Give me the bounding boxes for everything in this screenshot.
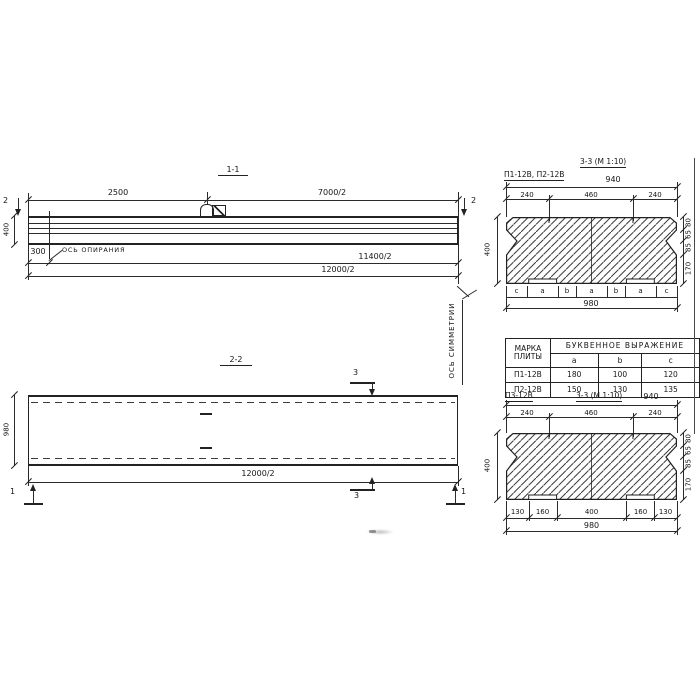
- section-cut-marker-3-top: 3: [353, 368, 358, 377]
- dim-line: [497, 433, 498, 500]
- cut-arrow-line: [372, 382, 373, 389]
- dim-tick: [680, 496, 687, 503]
- extension-line: [207, 192, 208, 204]
- cut-arrow-line: [464, 198, 465, 209]
- plate-cross-section-top: [506, 217, 677, 284]
- dim-label-160: 160: [529, 508, 556, 516]
- letter-c: c: [656, 287, 677, 295]
- section-cut-marker-1-right: 1: [461, 487, 466, 496]
- dim-label-460: 460: [572, 409, 610, 417]
- cut-arrow-line: [33, 490, 34, 503]
- table-col-a: a: [550, 354, 598, 368]
- table-row: П1-12В 180 100 120: [506, 368, 700, 383]
- extension-line: [677, 400, 678, 433]
- section-3-3-title-top: 3-3 (М 1:10): [580, 157, 626, 168]
- center-mark: [200, 413, 212, 415]
- cell-mark: П1-12В: [506, 368, 551, 383]
- dim-label-240: 240: [636, 409, 674, 417]
- dim-line: [497, 217, 498, 284]
- beam-layer-line: [29, 223, 457, 224]
- dim-tick: [494, 496, 501, 503]
- hidden-edge-dashed-line: [31, 402, 455, 403]
- section-cut-marker-1-left: 1: [10, 487, 15, 496]
- dim-label-12000-2: 12000/2: [314, 265, 362, 274]
- dim-tick: [680, 280, 687, 287]
- extension-line: [28, 193, 29, 216]
- extension-line: [677, 182, 678, 217]
- dim-label-12000-2: 12000/2: [234, 469, 282, 478]
- dim-label-940: 940: [598, 175, 628, 184]
- parameters-table: МАРКАПЛИТЫ БУКВЕННОЕ ВЫРАЖЕНИЕ a b c П1-…: [505, 338, 700, 398]
- table-col-b: b: [598, 354, 642, 368]
- dim-line: [506, 405, 677, 406]
- dim-label-7000-2: 7000/2: [308, 188, 356, 197]
- letter-a: a: [576, 287, 607, 295]
- cell-c: 120: [642, 368, 700, 383]
- beam-layer-line: [29, 228, 457, 229]
- scan-smudge: [369, 530, 376, 533]
- center-mark: [200, 447, 212, 449]
- sheet-frame-line: [694, 158, 695, 434]
- letter-a: a: [527, 287, 558, 295]
- dim-label-940: 940: [636, 392, 666, 401]
- extension-line: [458, 192, 459, 284]
- support-axis-label: ОСЬ ОПИРАНИЯ: [62, 246, 125, 255]
- beam-layer-line: [29, 233, 457, 234]
- dim-line: [506, 308, 677, 309]
- dim-label-170: 170: [685, 473, 694, 497]
- dim-label-170: 170: [685, 257, 694, 281]
- symmetry-axis-label: ОСЬ СИММЕТРИИ: [448, 293, 457, 388]
- dim-label-300: 300: [28, 247, 48, 256]
- beam-elevation: [28, 216, 458, 245]
- dim-label-980: 980: [578, 521, 605, 530]
- letter-a: a: [625, 287, 656, 295]
- dim-line: [506, 199, 677, 200]
- letter-b: b: [558, 287, 576, 295]
- dim-line: [506, 187, 677, 188]
- dim-tick: [11, 462, 18, 469]
- dim-label-2500: 2500: [98, 188, 138, 197]
- dim-label-11400-2: 11400/2: [352, 252, 398, 261]
- plate-cross-section-bottom: [506, 433, 677, 500]
- table-col-c: c: [642, 354, 700, 368]
- hidden-edge-dashed-line: [31, 458, 455, 459]
- dim-line: [28, 482, 458, 483]
- dim-label-130: 130: [652, 508, 679, 516]
- dim-line: [14, 395, 15, 466]
- section-cut-marker-2-left: 2: [3, 196, 8, 205]
- dim-label-400: 400: [578, 508, 605, 516]
- support-axis-line: [49, 211, 50, 259]
- loop-tag-icon: [212, 205, 226, 216]
- section-2-2-title: 2-2: [220, 355, 252, 366]
- symmetry-axis-underline: [462, 300, 463, 385]
- dim-tick: [494, 280, 501, 287]
- dim-label-240: 240: [508, 191, 546, 199]
- dim-line: [14, 216, 15, 245]
- dim-line: [28, 263, 458, 264]
- section-3-3-title-bottom: 3-3 (М 1:10): [576, 391, 622, 402]
- dim-label-240: 240: [636, 191, 674, 199]
- extension-line: [28, 245, 29, 280]
- dim-label-980: 980: [3, 418, 12, 442]
- extension-line: [28, 466, 29, 486]
- dim-label-400: 400: [484, 238, 493, 262]
- dim-label-240: 240: [508, 409, 546, 417]
- drawing-sheet: 1-1 2500 7000/2 2 2 ОСЬ ОПИРАНИЯ 400 300…: [0, 0, 700, 700]
- dim-label-460: 460: [572, 191, 610, 199]
- dim-line: [28, 200, 458, 201]
- dim-line: [506, 417, 677, 418]
- dim-label-130: 130: [504, 508, 531, 516]
- section-cut-marker-3-bottom: 3: [354, 491, 359, 500]
- dim-tick: [677, 286, 678, 297]
- letter-row-line: [506, 297, 677, 298]
- cut-arrow-line: [455, 490, 456, 503]
- plate-marks-label: П1-12В, П2-12В: [504, 170, 564, 181]
- cut-line: [24, 503, 43, 505]
- section-1-1-title: 1-1: [218, 165, 248, 176]
- dim-label-400: 400: [3, 218, 12, 242]
- dim-line: [506, 531, 677, 532]
- letter-c: c: [506, 287, 527, 295]
- arrow-down-icon: [461, 209, 467, 216]
- dim-label-400: 400: [484, 454, 493, 478]
- dim-tick: [11, 241, 18, 248]
- cut-arrow-line: [18, 198, 19, 209]
- cell-b: 100: [598, 368, 642, 383]
- table-header-mark: МАРКАПЛИТЫ: [506, 339, 551, 368]
- section-cut-marker-2-right: 2: [471, 196, 476, 205]
- extension-line: [458, 466, 459, 486]
- dim-line: [28, 276, 458, 277]
- table-header-expression: БУКВЕННОЕ ВЫРАЖЕНИЕ: [550, 339, 699, 354]
- dim-label-160: 160: [627, 508, 654, 516]
- letter-b: b: [607, 287, 625, 295]
- cut-line: [446, 503, 465, 505]
- extension-line: [506, 400, 507, 433]
- plate-plan-view: [28, 395, 458, 466]
- cell-a: 180: [550, 368, 598, 383]
- extension-line: [506, 182, 507, 217]
- dim-label-980: 980: [572, 299, 610, 308]
